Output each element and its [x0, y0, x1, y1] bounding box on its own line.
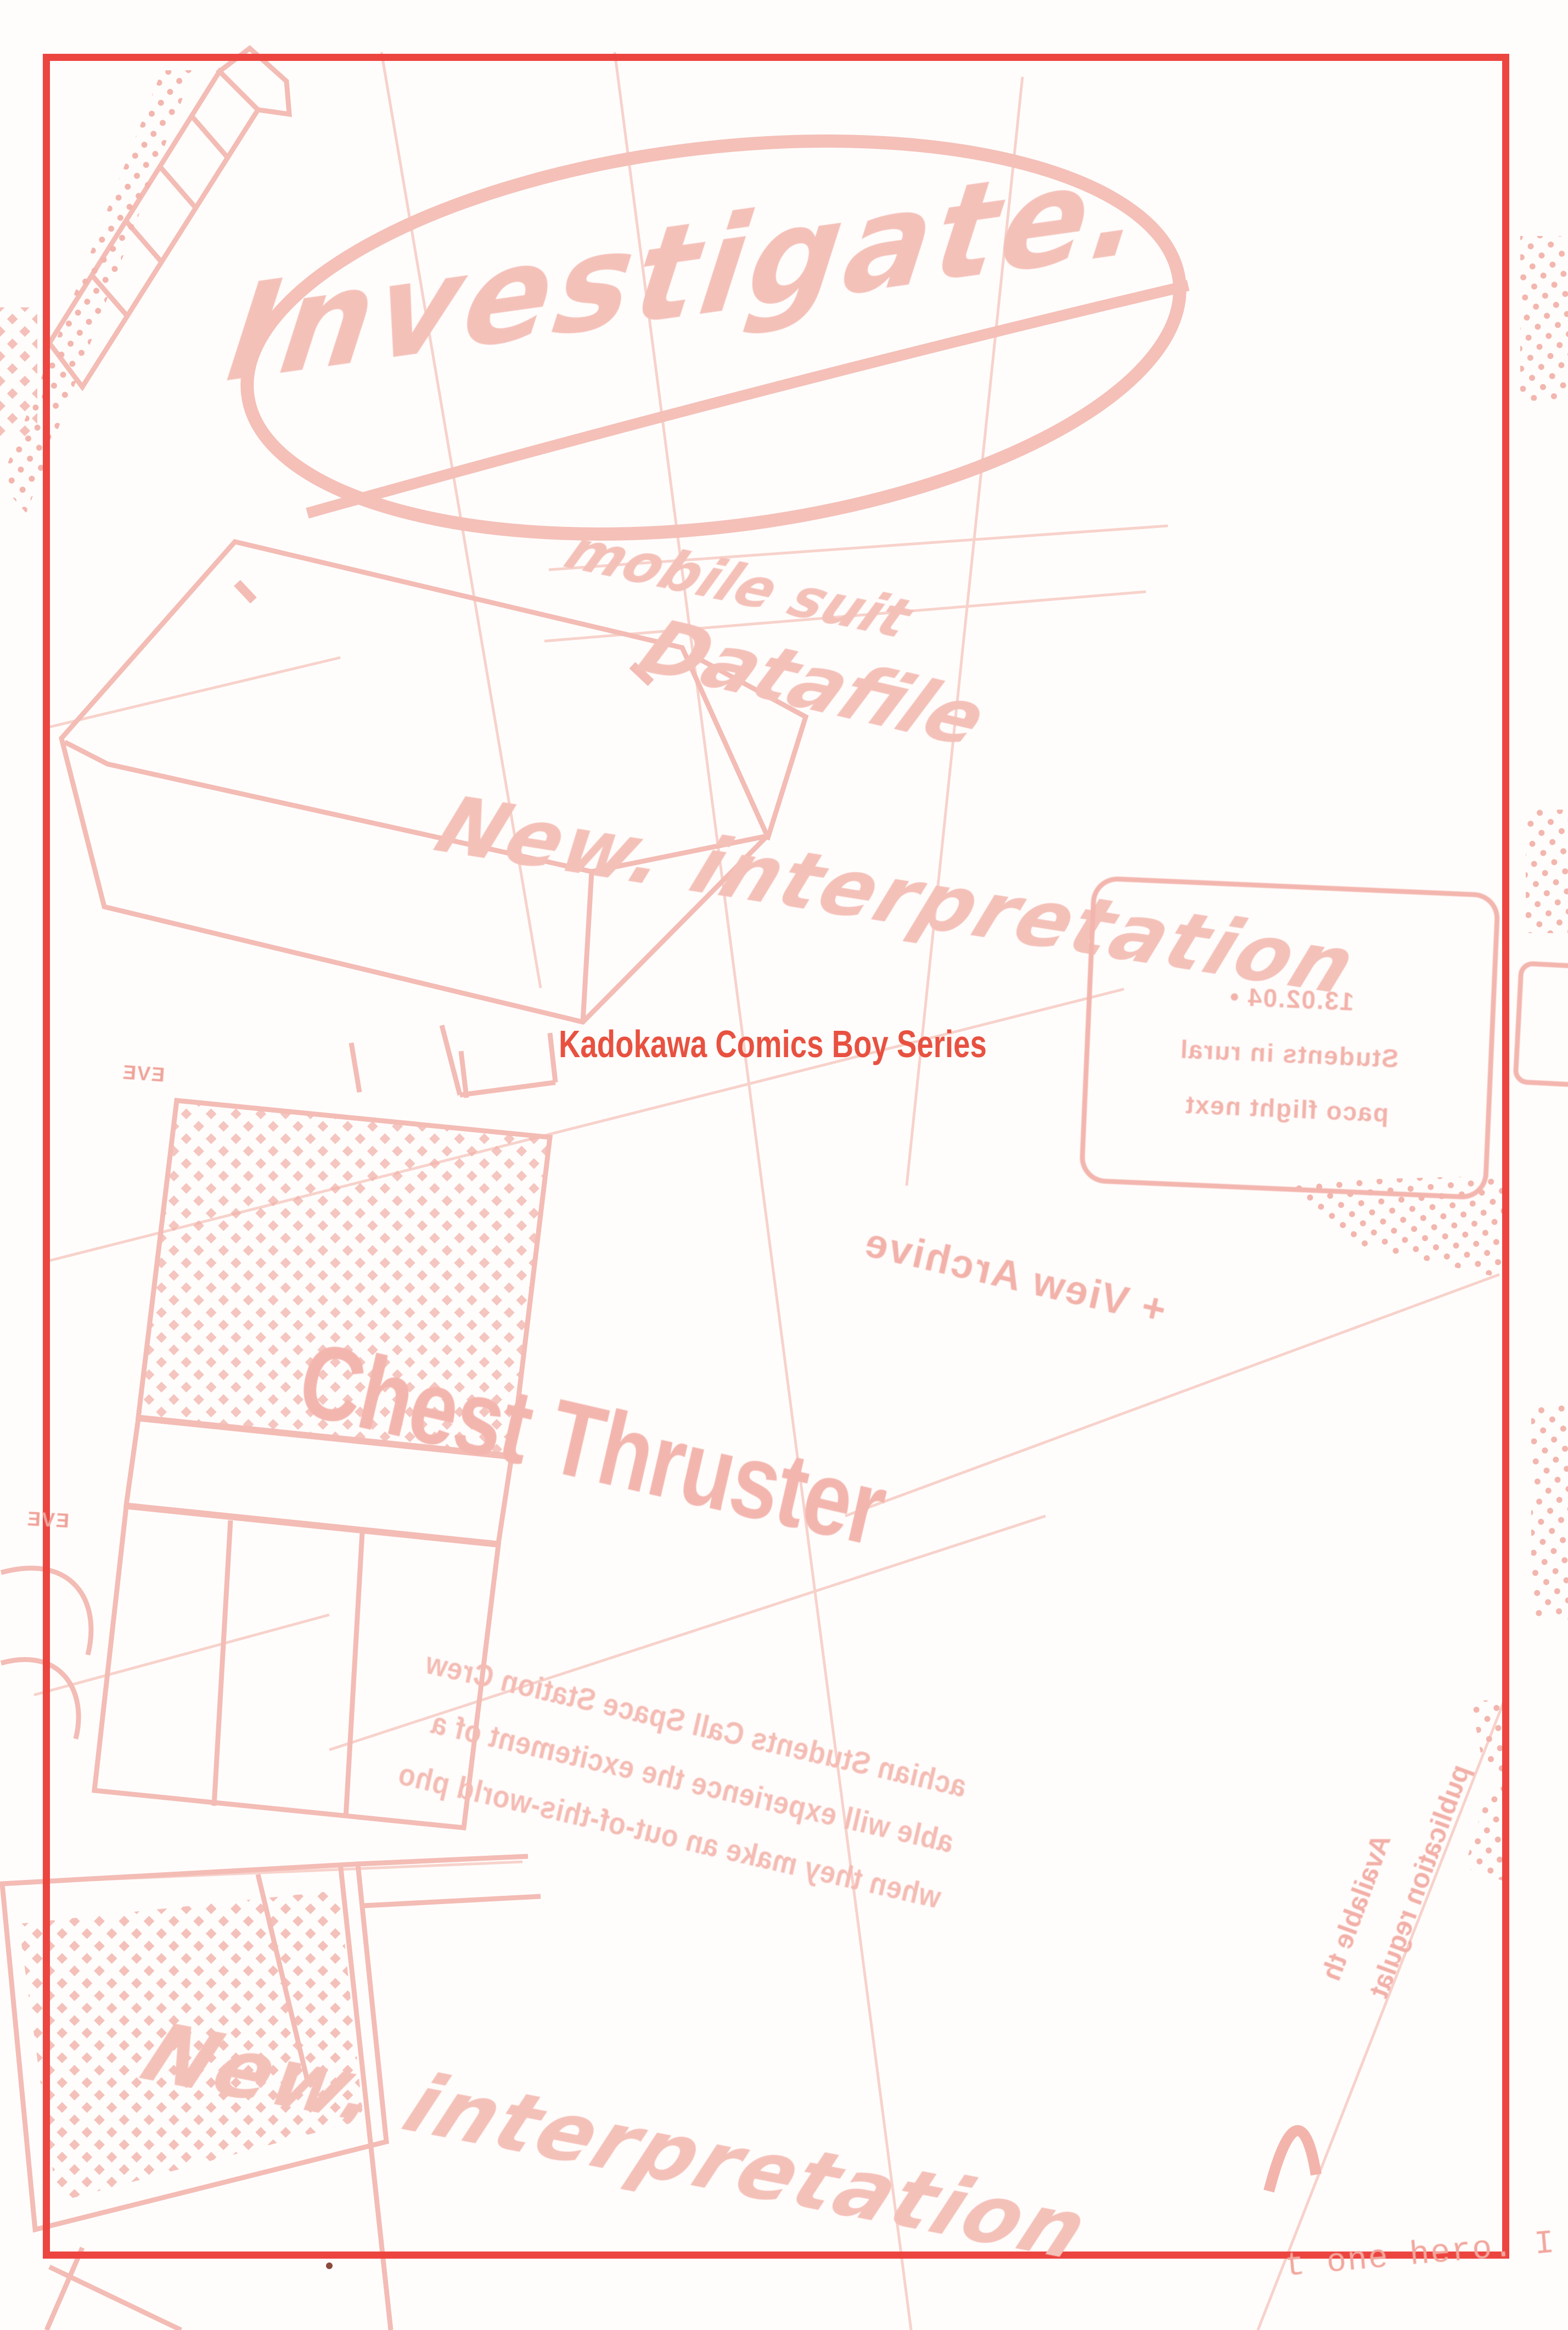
log-card-text: 13.02.04 • Students in rural paco flight… [1086, 963, 1492, 1144]
typewriter-line: t one hero. I [1241, 2212, 1568, 2297]
part-tag-lower: EVE [26, 1507, 70, 1532]
part-tag-text: EVE [121, 1060, 166, 1086]
typewriter-fragment: t one hero. I The national powe Was not … [1232, 2107, 1568, 2330]
scanned-manga-page: Investigate. mobile suit Datafile New. i… [0, 0, 1568, 2330]
series-label: Kadokawa Comics Boy Series [559, 1022, 987, 1066]
small-card-outline [1513, 961, 1568, 1090]
part-tag-text: EVE [26, 1507, 70, 1532]
log-card: 13.02.04 • Students in rural paco flight… [1079, 875, 1501, 1200]
part-tag-upper: EVE [121, 1060, 166, 1086]
